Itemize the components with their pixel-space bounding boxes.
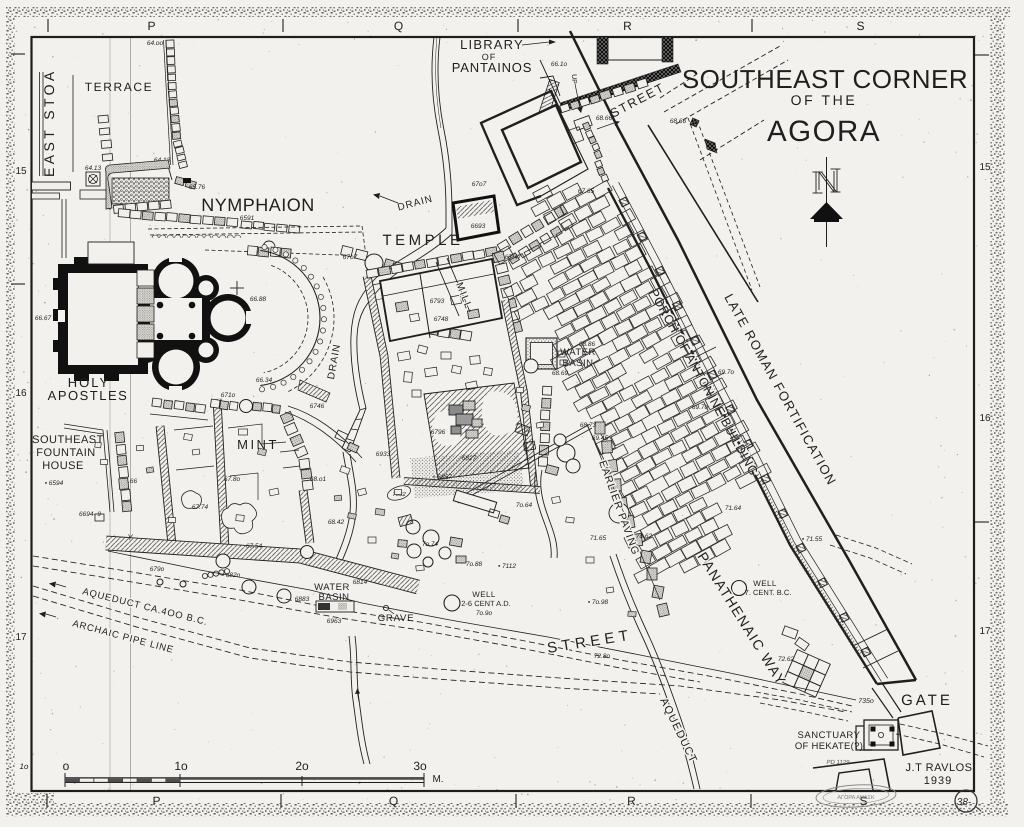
- svg-text:6591: 6591: [240, 215, 255, 222]
- svg-text:1o: 1o: [174, 759, 188, 773]
- svg-text:+ 6857: + 6857: [432, 474, 452, 481]
- svg-text:68.o1: 68.o1: [310, 476, 327, 483]
- svg-text:16: 16: [15, 388, 27, 399]
- svg-text:2o: 2o: [295, 759, 309, 773]
- svg-text:• 71.55: • 71.55: [802, 536, 823, 543]
- svg-text:6793: 6793: [430, 298, 445, 305]
- svg-text:69.7o: 69.7o: [692, 404, 709, 411]
- svg-text:SOUTHEAST CORNER: SOUTHEAST CORNER: [682, 64, 968, 94]
- svg-text:16: 16: [979, 413, 991, 424]
- svg-text:66.88: 66.88: [250, 296, 267, 303]
- svg-text:17: 17: [979, 626, 991, 637]
- svg-text:FOUNTAIN: FOUNTAIN: [36, 447, 95, 459]
- svg-text:67.74: 67.74: [192, 504, 209, 511]
- svg-text:15: 15: [15, 166, 27, 177]
- svg-text:R: R: [623, 19, 633, 33]
- svg-text:SOUTHEAST: SOUTHEAST: [32, 434, 104, 446]
- svg-text:6694- 9: 6694- 9: [79, 511, 101, 518]
- svg-text:1939: 1939: [924, 775, 952, 787]
- svg-text:Q: Q: [389, 794, 399, 808]
- svg-text:68.66: 68.66: [670, 118, 687, 125]
- svg-text:J.T RAVLOS: J.T RAVLOS: [906, 762, 973, 774]
- svg-text:71.65: 71.65: [590, 535, 607, 542]
- svg-text:Q: Q: [394, 19, 404, 33]
- svg-text:6748: 6748: [434, 316, 449, 323]
- svg-text:735o: 735o: [858, 698, 874, 705]
- svg-text:67o7: 67o7: [343, 254, 358, 261]
- svg-text:PANTAINOS: PANTAINOS: [452, 60, 532, 75]
- svg-text:LIBRARY: LIBRARY: [460, 37, 524, 52]
- svg-text:o: o: [63, 759, 70, 773]
- svg-text:WELL: WELL: [472, 590, 496, 599]
- svg-text:3o: 3o: [413, 759, 427, 773]
- svg-text:SANCTUARY: SANCTUARY: [798, 730, 861, 741]
- svg-text:R: R: [627, 794, 637, 808]
- svg-text:68.86: 68.86: [579, 341, 596, 348]
- svg-text:6814: 6814: [353, 579, 368, 586]
- svg-text:6883: 6883: [295, 596, 310, 603]
- svg-text:67o7: 67o7: [472, 181, 487, 188]
- svg-text:• 7112: • 7112: [498, 563, 516, 570]
- svg-text:TERRACE: TERRACE: [85, 80, 154, 94]
- svg-text:679o: 679o: [150, 566, 165, 573]
- svg-text:2-6 CENT A.D.: 2-6 CENT A.D.: [461, 599, 510, 608]
- svg-text:69.45: 69.45: [592, 435, 609, 442]
- svg-text:OF HEKATE(?): OF HEKATE(?): [795, 741, 863, 752]
- svg-text:7o.62: 7o.62: [636, 533, 653, 540]
- svg-text:1o: 1o: [20, 762, 29, 771]
- svg-text:• 7o.98: • 7o.98: [588, 599, 609, 606]
- svg-text:7o.9o: 7o.9o: [476, 610, 493, 617]
- svg-text:MINT: MINT: [237, 437, 279, 452]
- svg-text:72.8o: 72.8o: [594, 653, 611, 660]
- svg-text:6963: 6963: [327, 618, 342, 625]
- svg-text:WELL: WELL: [753, 579, 777, 588]
- svg-text:6796: 6796: [431, 429, 446, 436]
- svg-text:68.42: 68.42: [328, 519, 345, 526]
- svg-text:M.: M.: [432, 774, 443, 785]
- svg-text:7. CENT. B.C.: 7. CENT. B.C.: [745, 588, 792, 597]
- svg-text:• 69.7o: • 69.7o: [714, 369, 735, 376]
- svg-text:P: P: [152, 794, 161, 808]
- svg-text:15: 15: [979, 162, 991, 173]
- svg-text:ΑΓΟΡΑ ΑΝΑΣΚ: ΑΓΟΡΑ ΑΝΑΣΚ: [837, 795, 875, 801]
- svg-text:68.66: 68.66: [596, 115, 613, 122]
- svg-text:66.1o: 66.1o: [551, 61, 568, 68]
- svg-text:38-: 38-: [957, 797, 972, 808]
- svg-text:68.73: 68.73: [580, 422, 597, 429]
- svg-text:67.8o: 67.8o: [224, 476, 241, 483]
- svg-text:APOSTLES: APOSTLES: [48, 388, 129, 403]
- svg-text:HOUSE: HOUSE: [42, 460, 84, 472]
- svg-text:7o.64: 7o.64: [516, 502, 533, 509]
- svg-text:671o: 671o: [221, 392, 236, 399]
- svg-text:7o.74: 7o.74: [422, 541, 439, 548]
- svg-text:P: P: [147, 19, 156, 33]
- svg-text:NYMPHAION: NYMPHAION: [201, 195, 315, 215]
- svg-text:67.54: 67.54: [246, 543, 263, 550]
- svg-text:UP: UP: [570, 74, 577, 84]
- svg-text:6693: 6693: [471, 223, 486, 230]
- svg-text:TEMPLE: TEMPLE: [382, 232, 463, 249]
- svg-text:6746: 6746: [310, 403, 325, 410]
- svg-text:17: 17: [15, 632, 27, 643]
- svg-text:6827: 6827: [462, 455, 477, 462]
- svg-text:EAST STOA: EAST STOA: [41, 68, 57, 177]
- svg-text:64.13: 64.13: [85, 165, 102, 172]
- svg-text:Y: Y: [127, 533, 133, 542]
- svg-text:67.65: 67.65: [578, 188, 595, 195]
- svg-text:S: S: [856, 19, 865, 33]
- svg-text:AGORA: AGORA: [767, 115, 881, 148]
- svg-text:PD 1129: PD 1129: [827, 759, 851, 766]
- svg-text:6933: 6933: [376, 451, 391, 458]
- svg-text:• 6594: • 6594: [45, 480, 64, 487]
- svg-text:68.69: 68.69: [552, 370, 569, 377]
- svg-text:65.76: 65.76: [189, 184, 206, 191]
- svg-text:GRAVE: GRAVE: [378, 613, 415, 624]
- svg-text:GATE: GATE: [901, 692, 953, 709]
- svg-text:66.67: 66.67: [35, 315, 52, 322]
- svg-text:64.oo: 64.oo: [147, 40, 164, 47]
- svg-text:71.64: 71.64: [725, 505, 742, 512]
- svg-text:OF THE: OF THE: [791, 92, 858, 108]
- svg-text:7o.88: 7o.88: [466, 561, 483, 568]
- svg-text:66.34: 66.34: [256, 377, 273, 384]
